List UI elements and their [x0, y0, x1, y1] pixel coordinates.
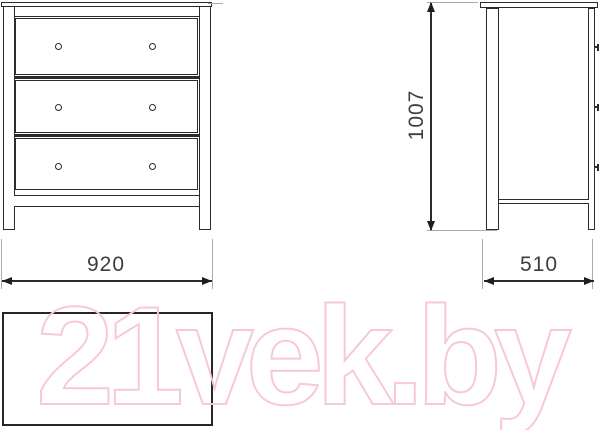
watermark: 21vek.by	[36, 286, 564, 426]
technical-drawing: 1007 920 510 21vek.by	[0, 0, 600, 430]
